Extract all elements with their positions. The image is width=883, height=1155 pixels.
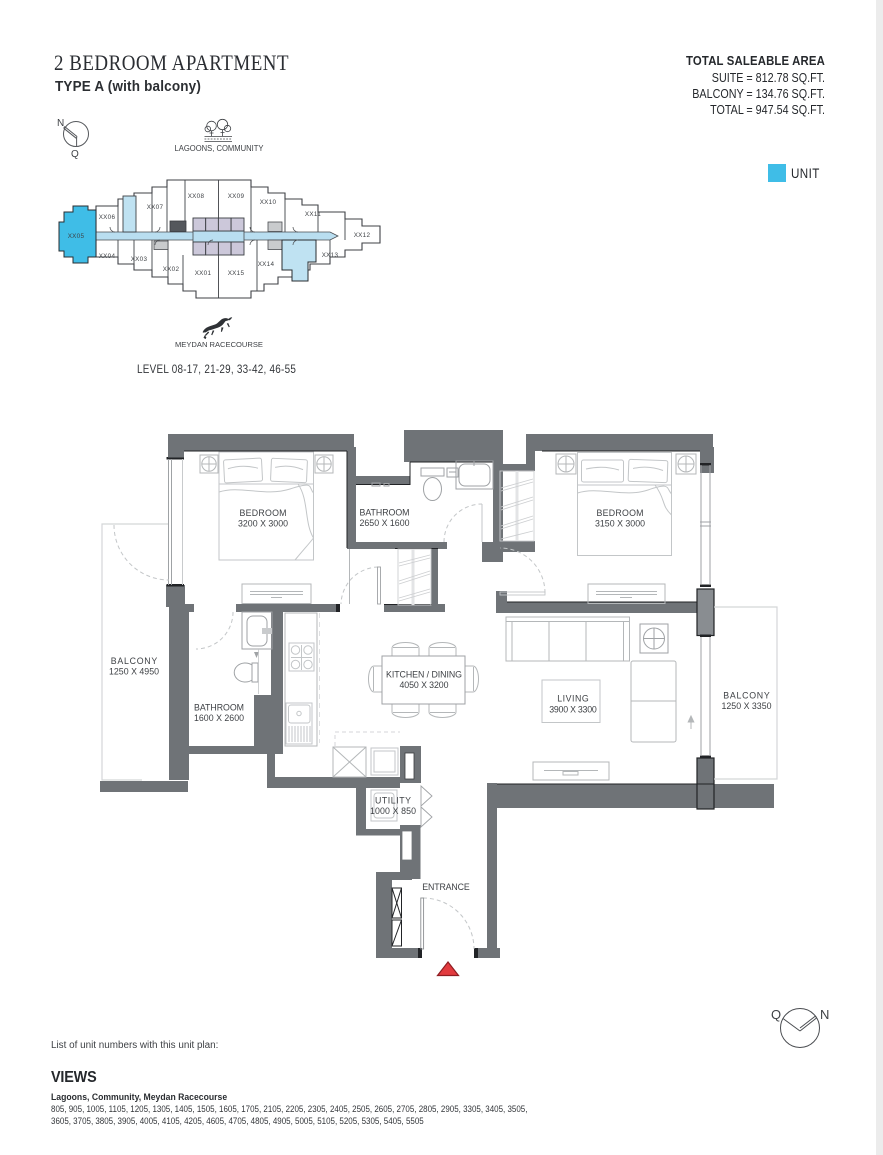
svg-text:XX07: XX07	[147, 204, 164, 211]
svg-text:2650 X 1600: 2650 X 1600	[360, 518, 410, 528]
svg-text:XX08: XX08	[188, 193, 205, 200]
svg-text:BALCONY: BALCONY	[723, 691, 770, 701]
svg-text:XX01: XX01	[195, 270, 212, 277]
svg-text:XX04: XX04	[99, 253, 116, 260]
svg-text:LIVING: LIVING	[557, 694, 589, 704]
svg-text:N: N	[57, 118, 64, 129]
svg-text:XX02: XX02	[163, 266, 180, 273]
svg-text:3150 X 3000: 3150 X 3000	[595, 519, 645, 529]
svg-text:BEDROOM: BEDROOM	[240, 508, 287, 518]
svg-text:XX03: XX03	[131, 256, 148, 263]
svg-text:1250 X 4950: 1250 X 4950	[109, 667, 159, 677]
svg-text:XX13: XX13	[322, 252, 339, 259]
svg-text:BEDROOM: BEDROOM	[597, 508, 644, 518]
svg-text:BALCONY: BALCONY	[111, 656, 158, 666]
svg-text:BATHROOM: BATHROOM	[194, 703, 244, 713]
svg-text:1000 X 850: 1000 X 850	[370, 806, 416, 816]
svg-text:XX15: XX15	[228, 270, 245, 277]
svg-text:3200 X 3000: 3200 X 3000	[238, 519, 288, 529]
svg-text:XX06: XX06	[99, 214, 116, 221]
svg-text:UTILITY: UTILITY	[375, 796, 411, 806]
svg-text:XX09: XX09	[228, 193, 245, 200]
svg-text:MEYDAN RACECOURSE: MEYDAN RACECOURSE	[175, 340, 263, 349]
svg-text:1250 X 3350: 1250 X 3350	[722, 701, 772, 711]
svg-text:BATHROOM: BATHROOM	[360, 508, 410, 518]
svg-text:4050 X 3200: 4050 X 3200	[400, 680, 449, 690]
svg-text:XX10: XX10	[260, 199, 277, 206]
svg-text:XX12: XX12	[354, 232, 371, 239]
svg-text:LAGOONS, COMMUNITY: LAGOONS, COMMUNITY	[175, 144, 265, 153]
svg-text:Q: Q	[771, 1007, 781, 1022]
svg-text:N: N	[820, 1007, 829, 1022]
svg-text:1600 X 2600: 1600 X 2600	[194, 713, 244, 723]
svg-text:XX14: XX14	[258, 261, 275, 268]
svg-text:Q: Q	[71, 149, 79, 160]
svg-text:3900 X 3300: 3900 X 3300	[549, 704, 597, 714]
svg-text:ENTRANCE: ENTRANCE	[422, 882, 470, 892]
svg-text:XX05: XX05	[68, 233, 85, 240]
svg-text:KITCHEN / DINING: KITCHEN / DINING	[386, 670, 462, 680]
svg-text:XX11: XX11	[305, 211, 321, 218]
